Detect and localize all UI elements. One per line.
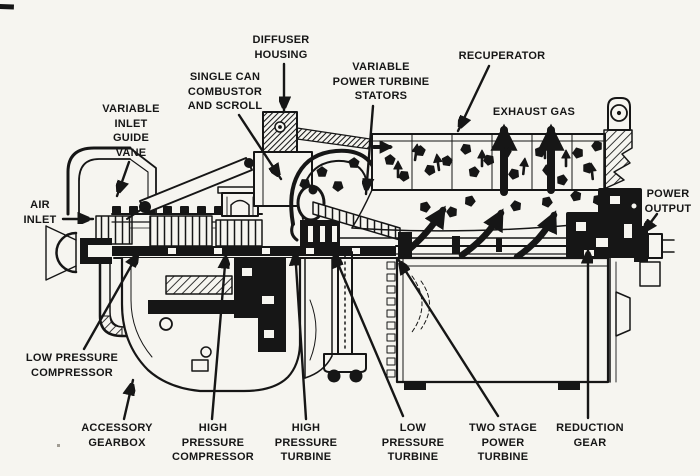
label-line: TURBINE [382,450,445,465]
label-line: GEAR [556,436,624,451]
leader-recuperator [458,66,489,131]
label-two-stage-power-turbine: TWO STAGEPOWERTURBINE [469,421,537,465]
lp-compressor-stage [150,216,212,246]
label-line: AIR [23,198,56,213]
label-line: RECUPERATOR [459,49,546,64]
leader-power-output [642,214,657,234]
label-line: TURBINE [469,450,537,465]
label-line: REDUCTION [556,421,624,436]
label-accessory-gearbox: ACCESSORYGEARBOX [81,421,153,450]
label-exhaust-gas: EXHAUST GAS [493,105,575,120]
power-output-shaft [634,226,674,286]
label-line: TWO STAGE [469,421,537,436]
label-line: COMPRESSOR [172,450,254,465]
label-line: PRESSURE [275,436,338,451]
label-line: OUTPUT [645,202,692,217]
label-line: EXHAUST GAS [493,105,575,120]
label-line: VANE [102,146,159,161]
label-low-pressure-turbine: LOWPRESSURETURBINE [382,421,445,465]
label-variable-power-turbine-stators: VARIABLEPOWER TURBINESTATORS [333,60,430,104]
lifting-eye [604,98,632,188]
label-line: TURBINE [275,450,338,465]
leader-accessory-gearbox [124,380,133,419]
label-line: LOW [382,421,445,436]
label-line: STATORS [333,89,430,104]
engine-diagram: DIFFUSERHOUSINGSINGLE CANCOMBUSTORAND SC… [0,0,700,476]
label-single-can-combustor-and-scroll: SINGLE CANCOMBUSTORAND SCROLL [188,70,263,114]
label-line: HOUSING [253,48,310,63]
power-turbine-housing [387,258,608,390]
label-variable-inlet-guide-vane: VARIABLEINLETGUIDEVANE [102,102,159,160]
label-high-pressure-compressor: HIGHPRESSURECOMPRESSOR [172,421,254,465]
label-line: POWER TURBINE [333,75,430,90]
label-line: HIGH [172,421,254,436]
label-line: GUIDE [102,131,159,146]
label-line: LOW PRESSURE [26,351,118,366]
label-line: COMPRESSOR [26,366,118,381]
label-line: INLET [23,213,56,228]
label-line: PRESSURE [172,436,254,451]
label-line: SINGLE CAN [188,70,263,85]
label-high-pressure-turbine: HIGHPRESSURETURBINE [275,421,338,465]
label-line: INLET [102,117,159,132]
label-line: POWER [645,187,692,202]
turbine-stages [300,202,400,248]
label-line: VARIABLE [333,60,430,75]
label-line: PRESSURE [382,436,445,451]
label-line: HIGH [275,421,338,436]
label-diffuser-housing: DIFFUSERHOUSING [253,33,310,62]
label-low-pressure-compressor: LOW PRESSURECOMPRESSOR [26,351,118,380]
label-line: DIFFUSER [253,33,310,48]
label-line: ACCESSORY [81,421,153,436]
label-reduction-gear: REDUCTIONGEAR [556,421,624,450]
leader-variable-inlet-guide-vane [117,162,129,196]
hp-compressor-stage [216,220,262,246]
label-line: VARIABLE [102,102,159,117]
label-line: COMBUSTOR [188,85,263,100]
label-line: POWER [469,436,537,451]
label-air-inlet: AIRINLET [23,198,56,227]
label-line: AND SCROLL [188,99,263,114]
label-line: GEARBOX [81,436,153,451]
label-recuperator: RECUPERATOR [459,49,546,64]
label-power-output: POWEROUTPUT [645,187,692,216]
